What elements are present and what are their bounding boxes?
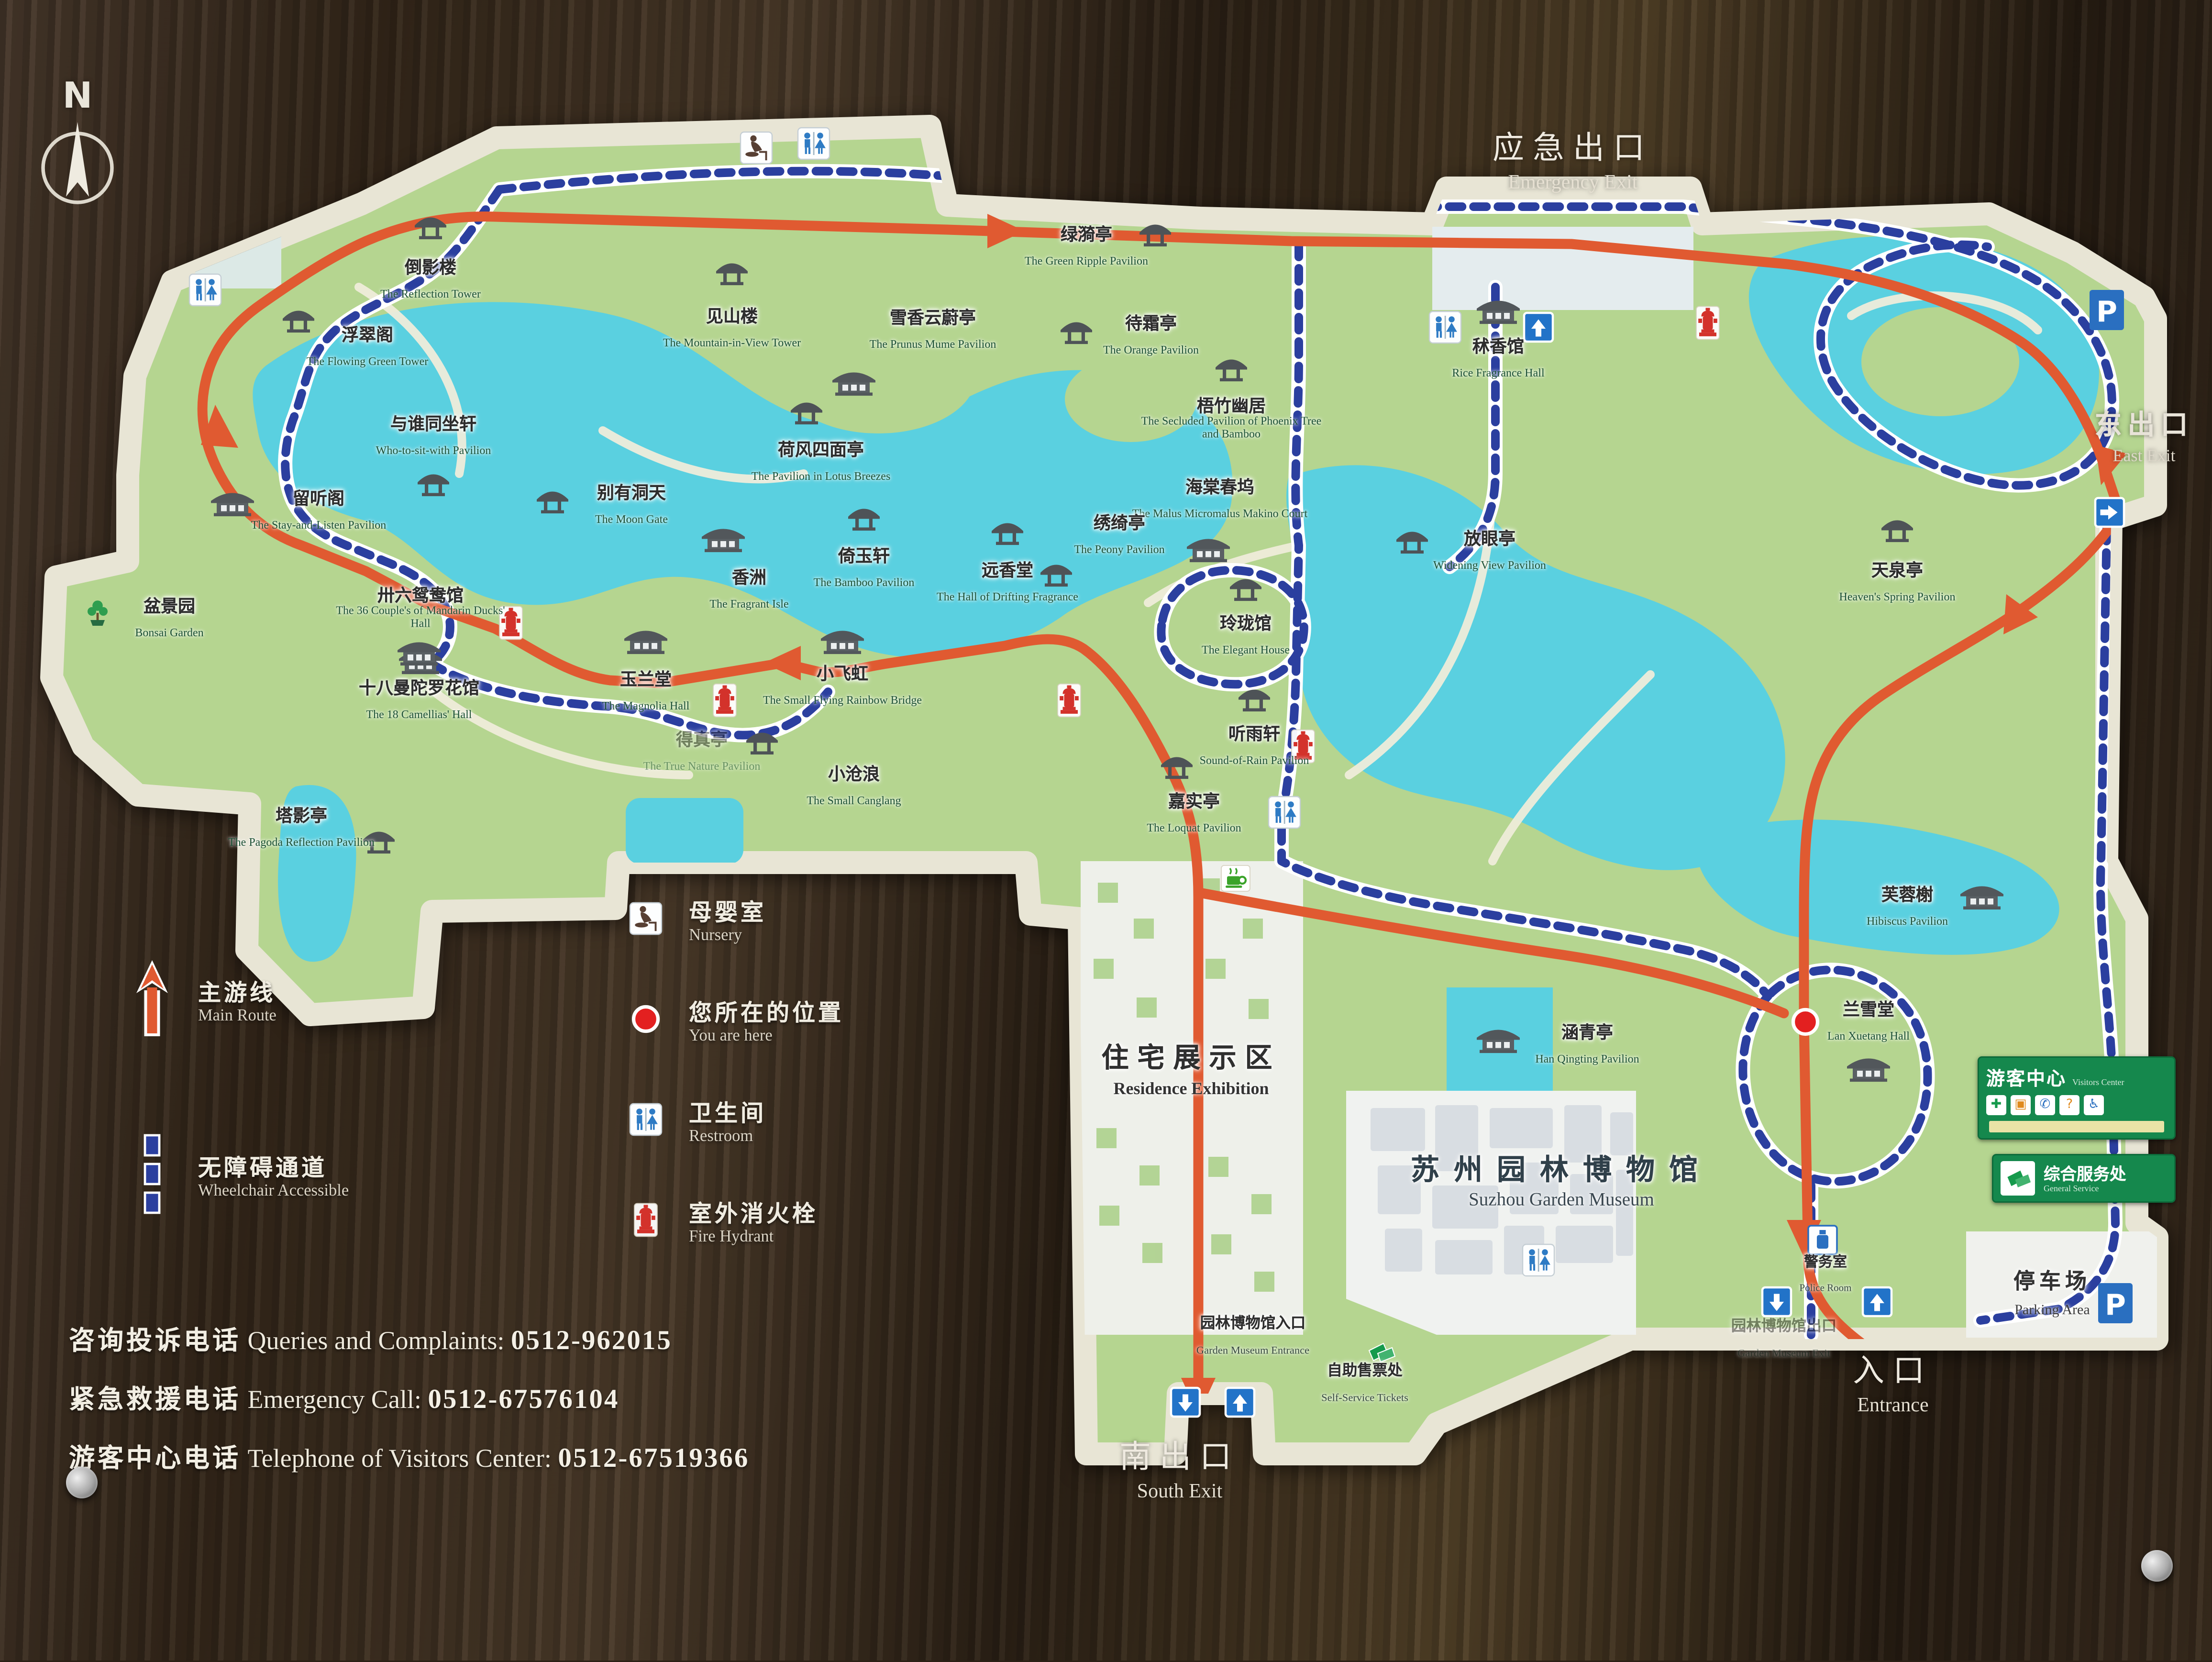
legend-label-cn: 主游线 bbox=[198, 973, 276, 1008]
map-label: 放眼亭Widening View Pavilion bbox=[1433, 530, 1546, 575]
label-en: The 18 Camellias' Hall bbox=[366, 710, 472, 723]
label-en: Residence Exhibition bbox=[1113, 1080, 1269, 1099]
legend-label-cn: 无障碍通道 bbox=[198, 1148, 349, 1183]
tickets-icon bbox=[1369, 1343, 1395, 1362]
legend-row: 卫生间Restroom bbox=[620, 1094, 766, 1145]
map-outline bbox=[52, 126, 2157, 1454]
map-label: 倒影楼The Reflection Tower bbox=[380, 259, 481, 304]
map-label: 卅六鸳鸯馆The 36 Couple's of Mandarin Ducks' … bbox=[329, 587, 512, 633]
label-cn: 嘉实亭 bbox=[1147, 793, 1241, 812]
pavilion-icon bbox=[537, 492, 568, 514]
contact-phone: 咨询投诉电话 Queries and Complaints: 0512-9620… bbox=[69, 1320, 749, 1358]
label-en: The Bamboo Pavilion bbox=[814, 578, 915, 591]
contact-text: 0512-67519366 bbox=[558, 1444, 749, 1474]
label-cn: 待霜亭 bbox=[1103, 315, 1199, 334]
visitors-center-label: 游客中心 bbox=[1986, 1064, 2067, 1091]
map-label: 芙蓉榭Hibiscus Pavilion bbox=[1867, 886, 1948, 931]
map-label: 留听阁The Stay-and-Listen Pavilion bbox=[251, 490, 387, 535]
label-en: The Secluded Pavilion of Phoenix Tree an… bbox=[1139, 417, 1323, 443]
label-en: The 36 Couple's of Mandarin Ducks' Hall bbox=[329, 606, 512, 632]
label-cn: 兰雪堂 bbox=[1827, 1001, 1910, 1020]
label-en: The Small Canglang bbox=[807, 796, 901, 809]
contact-text: Telephone of Visitors Center: bbox=[241, 1444, 558, 1473]
legend-label-cn: 您所在的位置 bbox=[689, 993, 844, 1028]
label-cn: 秫香馆 bbox=[1452, 338, 1544, 357]
label-cn: 香洲 bbox=[709, 569, 788, 588]
label-en: The Fragrant Isle bbox=[709, 599, 788, 612]
label-en: The Pagoda Reflection Pavilion bbox=[228, 838, 375, 851]
label-en: Rice Fragrance Hall bbox=[1452, 368, 1544, 381]
contact-phone: 紧急救援电话 Emergency Call: 0512-67576104 bbox=[69, 1379, 749, 1417]
map-label: 得真亭The True Nature Pavilion bbox=[643, 731, 761, 776]
pavilion-icon bbox=[1230, 579, 1261, 601]
general-service-sign: 综合服务处 General Service bbox=[1992, 1154, 2176, 1203]
exitdown-icon bbox=[1171, 1388, 1200, 1417]
label-cn: 涵青亭 bbox=[1535, 1024, 1639, 1043]
pavilion-icon bbox=[418, 475, 449, 497]
label-en: Entrance bbox=[1857, 1395, 1928, 1418]
hall-icon bbox=[821, 631, 864, 654]
pavilion-icon bbox=[1881, 521, 1913, 543]
label-cn: 放眼亭 bbox=[1433, 530, 1546, 549]
label-cn: 停车场 bbox=[2013, 1270, 2091, 1294]
legend-row: 您所在的位置You are here bbox=[620, 993, 844, 1045]
restroom-icon bbox=[1269, 797, 1300, 828]
gate-icon bbox=[2095, 498, 2124, 527]
label-cn: 塔影亭 bbox=[228, 807, 375, 826]
legend-label-en: Fire Hydrant bbox=[689, 1229, 818, 1246]
bonsai-icon bbox=[88, 600, 108, 626]
label-cn: 苏州园林博物馆 bbox=[1411, 1154, 1712, 1186]
label-en: The Pavilion in Lotus Breezes bbox=[752, 472, 891, 485]
residence-blocks bbox=[1094, 878, 1274, 1292]
service-mini-icon: ✆ bbox=[2035, 1095, 2055, 1115]
hydrant-icon bbox=[1696, 307, 1719, 340]
service-mini-icon: ▣ bbox=[2011, 1095, 2031, 1115]
exitdown-icon bbox=[1762, 1287, 1791, 1316]
map-label: 兰雪堂Lan Xuetang Hall bbox=[1827, 1001, 1910, 1046]
label-en: East Exit bbox=[2112, 447, 2175, 466]
map-label: 玉兰堂The Magnolia Hall bbox=[602, 671, 690, 716]
map-label: 涵青亭Han Qingting Pavilion bbox=[1535, 1024, 1639, 1069]
gate-icon bbox=[1524, 313, 1553, 342]
hydrant-icon bbox=[1058, 684, 1081, 717]
legend-label-en: You are here bbox=[689, 1028, 844, 1045]
map-label: 玲珑馆The Elegant House bbox=[1202, 615, 1290, 660]
general-service-icon bbox=[2001, 1161, 2035, 1196]
service-mini-icon: ? bbox=[2059, 1095, 2079, 1115]
label-cn: 荷风四面亭 bbox=[752, 441, 891, 460]
mount-screw bbox=[2141, 1550, 2173, 1582]
hall-icon bbox=[1187, 539, 1230, 563]
pavilion-icon bbox=[1139, 225, 1171, 247]
label-cn: 东出口 bbox=[2094, 411, 2193, 442]
label-cn: 卅六鸳鸯馆 bbox=[329, 587, 512, 606]
general-service-label-en: General Service bbox=[2044, 1186, 2126, 1194]
hydrant-icon bbox=[1292, 730, 1315, 763]
pavilion-icon bbox=[1040, 565, 1072, 587]
label-en: Garden Museum Entrance bbox=[1196, 1345, 1309, 1357]
label-cn: 园林博物馆入口 bbox=[1196, 1317, 1309, 1333]
map-label: 小飞虹The Small Flying Rainbow Bridge bbox=[763, 665, 922, 710]
map-label: 别有洞天The Moon Gate bbox=[595, 484, 668, 529]
contact-text: 0512-962015 bbox=[511, 1326, 672, 1356]
legend-label-en: Wheelchair Accessible bbox=[198, 1183, 349, 1200]
label-cn: 倒影楼 bbox=[380, 259, 481, 278]
map-label: 待霜亭The Orange Pavilion bbox=[1103, 315, 1199, 360]
compass: N bbox=[37, 75, 118, 214]
label-cn: 玲珑馆 bbox=[1202, 615, 1290, 634]
map-label: 警务室Police Room bbox=[1799, 1255, 1851, 1296]
contact-text: Emergency Call: bbox=[241, 1385, 428, 1414]
label-cn: 小飞虹 bbox=[763, 665, 922, 684]
main-route-arrows bbox=[201, 214, 2127, 1415]
label-cn: 玉兰堂 bbox=[602, 671, 690, 690]
youarehere-legend-icon bbox=[620, 993, 672, 1045]
pavilion-icon bbox=[363, 832, 395, 854]
main-route-legend-icon bbox=[123, 953, 181, 1045]
contact-text: 紧急救援电话 bbox=[69, 1385, 241, 1415]
hall-icon bbox=[1477, 301, 1520, 324]
label-cn: 园林博物馆出口 bbox=[1731, 1319, 1837, 1336]
map-label: 与谁同坐轩Who-to-sit-with Pavilion bbox=[376, 415, 491, 460]
map-label: 塔影亭The Pagoda Reflection Pavilion bbox=[228, 807, 375, 852]
pavilion-icon bbox=[1161, 757, 1193, 779]
label-cn: 倚玉轩 bbox=[814, 547, 915, 566]
map-label: 南出口South Exit bbox=[1119, 1441, 1240, 1504]
restroom-legend-icon bbox=[620, 1094, 672, 1145]
label-en: Parking Area bbox=[2014, 1302, 2090, 1319]
map-label: 雪香云蔚亭The Prunus Mume Pavilion bbox=[870, 309, 996, 354]
map-label: 听雨轩Sound-of-Rain Pavilion bbox=[1200, 725, 1309, 770]
legend-label-en: Nursery bbox=[689, 927, 766, 944]
label-en: The Green Ripple Pavilion bbox=[1025, 256, 1148, 269]
visitors-center-label-en: Visitors Center bbox=[2072, 1079, 2124, 1088]
pavilion-icon bbox=[791, 403, 822, 425]
map-label: 入口Entrance bbox=[1853, 1355, 1933, 1418]
restroom-icon bbox=[1523, 1244, 1554, 1276]
youarehere-icon bbox=[1793, 1010, 1818, 1034]
hall-icon bbox=[1960, 886, 2003, 910]
gate-icon bbox=[1863, 1287, 1891, 1316]
wheelchair-route-legend-icon bbox=[123, 1128, 181, 1220]
pavilion-icon bbox=[283, 311, 314, 333]
map-label: 远香堂The Hall of Drifting Fragrance bbox=[937, 562, 1078, 607]
label-en: The Orange Pavilion bbox=[1103, 345, 1199, 358]
label-en: The True Nature Pavilion bbox=[643, 762, 761, 775]
label-cn: 天泉亭 bbox=[1839, 562, 1956, 581]
legend-row: 母婴室Nursery bbox=[620, 893, 766, 944]
pavilion-icon bbox=[1061, 322, 1092, 344]
visitors-center-desk bbox=[1989, 1121, 2164, 1132]
pavilion-icon bbox=[992, 523, 1023, 545]
svg-text:P: P bbox=[2105, 1288, 2126, 1322]
label-en: The Malus Micromalus Makino Court bbox=[1132, 509, 1308, 522]
label-en: The Flowing Green Tower bbox=[307, 357, 428, 370]
label-en: The Prunus Mume Pavilion bbox=[870, 340, 996, 353]
label-en: Police Room bbox=[1799, 1284, 1851, 1295]
map-label: 盆景园Bonsai Garden bbox=[135, 598, 203, 643]
label-cn: 留听阁 bbox=[251, 490, 387, 509]
label-en: Widening View Pavilion bbox=[1433, 561, 1546, 574]
legend-label-en: Main Route bbox=[198, 1008, 276, 1025]
map-label: 绣绮亭The Peony Pavilion bbox=[1074, 514, 1164, 559]
label-cn: 梧竹幽居 bbox=[1139, 398, 1323, 417]
contact-text: 游客中心电话 bbox=[69, 1444, 241, 1474]
label-en: Who-to-sit-with Pavilion bbox=[376, 446, 491, 459]
label-en: Emergency Exit bbox=[1508, 172, 1638, 195]
service-mini-icon: ♿ bbox=[2084, 1095, 2104, 1115]
map-label: 自助售票处Self-Service Tickets bbox=[1321, 1364, 1408, 1407]
contact-text: 咨询投诉电话 bbox=[69, 1326, 241, 1356]
legend-row: 主游线Main Route bbox=[123, 953, 276, 1045]
nursery-legend-icon bbox=[620, 893, 672, 944]
label-en: The Mountain-in-View Tower bbox=[663, 338, 801, 351]
mount-screw bbox=[66, 1467, 98, 1498]
label-en: Bonsai Garden bbox=[135, 628, 203, 641]
wheelchair-route-line bbox=[285, 171, 2115, 1335]
map-board: PP N 咨询投诉电话 Queries and Complaints: 0512… bbox=[0, 0, 2212, 1661]
label-cn: 自助售票处 bbox=[1321, 1364, 1408, 1381]
label-cn: 芙蓉榭 bbox=[1867, 886, 1948, 905]
map-label: 倚玉轩The Bamboo Pavilion bbox=[814, 547, 915, 592]
label-en: The Hall of Drifting Fragrance bbox=[937, 592, 1078, 605]
label-cn: 绣绮亭 bbox=[1074, 514, 1164, 533]
label-cn: 别有洞天 bbox=[595, 484, 668, 503]
parking-icon: P bbox=[2090, 290, 2124, 330]
compass-n-label: N bbox=[63, 75, 93, 116]
gate-icon bbox=[1226, 1388, 1254, 1417]
pavilion-icon bbox=[848, 509, 880, 531]
label-en: Sound-of-Rain Pavilion bbox=[1200, 756, 1309, 769]
label-cn: 得真亭 bbox=[643, 731, 761, 750]
label-en: The Small Flying Rainbow Bridge bbox=[763, 696, 922, 709]
map-label: 浮翠阁The Flowing Green Tower bbox=[307, 326, 428, 371]
contact-text: Queries and Complaints: bbox=[241, 1326, 511, 1355]
label-cn: 应急出口 bbox=[1493, 133, 1653, 168]
legend-label-cn: 卫生间 bbox=[689, 1094, 766, 1128]
pavilion-icon bbox=[1216, 360, 1247, 382]
map-label: 香洲The Fragrant Isle bbox=[709, 569, 788, 614]
legend-label-en: Restroom bbox=[689, 1128, 766, 1145]
map-label: 绿漪亭The Green Ripple Pavilion bbox=[1025, 226, 1148, 271]
label-en: Self-Service Tickets bbox=[1321, 1392, 1408, 1404]
legend-label-cn: 母婴室 bbox=[689, 893, 766, 927]
pavilion-icon bbox=[716, 264, 748, 286]
label-cn: 十八曼陀罗花馆 bbox=[359, 679, 479, 698]
map-label: 嘉实亭The Loquat Pavilion bbox=[1147, 793, 1241, 838]
label-cn: 小沧浪 bbox=[807, 765, 901, 785]
hall-icon bbox=[398, 643, 441, 666]
contact-phone-list: 咨询投诉电话 Queries and Complaints: 0512-9620… bbox=[69, 1320, 749, 1475]
label-en: The Elegant House bbox=[1202, 645, 1290, 658]
compass-needle-icon bbox=[37, 116, 118, 208]
contact-text: 0512-67576104 bbox=[428, 1385, 619, 1415]
pavilion-icon bbox=[1396, 532, 1428, 554]
service-mini-icon: ✚ bbox=[1986, 1095, 2006, 1115]
hall-icon bbox=[211, 493, 254, 517]
label-en: Hibiscus Pavilion bbox=[1867, 917, 1948, 930]
restroom-icon bbox=[189, 274, 221, 306]
pavilion-icon bbox=[746, 733, 778, 755]
label-en: Suzhou Garden Museum bbox=[1469, 1190, 1654, 1211]
label-cn: 南出口 bbox=[1119, 1441, 1240, 1477]
map-label: 小沧浪The Small Canglang bbox=[807, 765, 901, 810]
label-en: The Moon Gate bbox=[595, 515, 668, 528]
hydrant-icon bbox=[499, 607, 522, 640]
label-cn: 雪香云蔚亭 bbox=[870, 309, 996, 328]
pavilion-icon bbox=[415, 218, 446, 240]
map-label: 见山楼The Mountain-in-View Tower bbox=[663, 308, 801, 353]
label-en: South Exit bbox=[1137, 1481, 1223, 1504]
main-route-line bbox=[202, 217, 2120, 1438]
map-label: 园林博物馆入口Garden Museum Entrance bbox=[1196, 1317, 1309, 1359]
legend-row: 室外消火栓Fire Hydrant bbox=[620, 1194, 818, 1246]
label-cn: 海棠春坞 bbox=[1132, 478, 1308, 498]
hall-icon bbox=[624, 631, 667, 654]
map-label: 苏州园林博物馆Suzhou Garden Museum bbox=[1411, 1154, 1712, 1212]
hall-icon bbox=[832, 373, 875, 396]
visitors-center-service-icons: ✚▣✆?♿ bbox=[1986, 1095, 2167, 1115]
hydrant-legend-icon bbox=[620, 1194, 672, 1246]
label-en: Lan Xuetang Hall bbox=[1827, 1031, 1910, 1044]
label-cn: 警务室 bbox=[1799, 1255, 1851, 1271]
map-label: 天泉亭Heaven's Spring Pavilion bbox=[1839, 562, 1956, 607]
restroom-icon bbox=[1429, 311, 1461, 343]
map-label: 海棠春坞The Malus Micromalus Makino Court bbox=[1132, 478, 1308, 523]
label-cn: 见山楼 bbox=[663, 308, 801, 327]
hall-icon bbox=[702, 529, 745, 553]
hydrant-icon bbox=[713, 684, 736, 717]
label-cn: 浮翠阁 bbox=[307, 326, 428, 345]
label-en: The Reflection Tower bbox=[380, 289, 481, 302]
map-label: 东出口East Exit bbox=[2094, 411, 2193, 467]
map-label: 应急出口Emergency Exit bbox=[1493, 133, 1653, 195]
hall-icon bbox=[1847, 1059, 1890, 1082]
nursery-icon bbox=[741, 132, 772, 164]
label-en: The Magnolia Hall bbox=[602, 701, 690, 714]
label-cn: 与谁同坐轩 bbox=[376, 415, 491, 434]
label-en: The Peony Pavilion bbox=[1074, 545, 1164, 558]
label-cn: 远香堂 bbox=[937, 562, 1078, 581]
map-label: 秫香馆Rice Fragrance Hall bbox=[1452, 338, 1544, 383]
label-en: Heaven's Spring Pavilion bbox=[1839, 592, 1956, 605]
map-label: 住宅展示区Residence Exhibition bbox=[1101, 1044, 1281, 1100]
contact-phone: 游客中心电话 Telephone of Visitors Center: 051… bbox=[69, 1438, 749, 1475]
label-cn: 住宅展示区 bbox=[1101, 1044, 1281, 1075]
visitors-center-sign: 游客中心 Visitors Center ✚▣✆?♿ bbox=[1978, 1056, 2176, 1140]
general-service-label: 综合服务处 bbox=[2044, 1163, 2126, 1186]
label-en: The Stay-and-Listen Pavilion bbox=[251, 521, 387, 533]
lake-water bbox=[253, 236, 2099, 1091]
museum-buildings bbox=[1371, 1105, 1633, 1274]
label-en: Han Qingting Pavilion bbox=[1535, 1054, 1639, 1067]
pavilion-icon bbox=[1239, 690, 1270, 712]
map-label: 十八曼陀罗花馆The 18 Camellias' Hall bbox=[359, 679, 479, 724]
label-cn: 听雨轩 bbox=[1200, 725, 1309, 744]
map-label: 停车场Parking Area bbox=[2013, 1270, 2091, 1319]
label-cn: 绿漪亭 bbox=[1025, 226, 1148, 245]
parking-icon: P bbox=[2098, 1283, 2133, 1323]
label-cn: 入口 bbox=[1853, 1355, 1933, 1391]
label-en: Garden Museum Exit bbox=[1737, 1348, 1830, 1360]
map-label: 园林博物馆出口Garden Museum Exit bbox=[1731, 1319, 1837, 1362]
svg-text:P: P bbox=[2096, 295, 2117, 329]
legend-label-cn: 室外消火栓 bbox=[689, 1194, 818, 1229]
label-en: The Loquat Pavilion bbox=[1147, 823, 1241, 836]
teacup-icon bbox=[1221, 865, 1250, 891]
label-cn: 盆景园 bbox=[135, 598, 203, 617]
restroom-icon bbox=[798, 128, 829, 159]
map-label: 梧竹幽居The Secluded Pavilion of Phoenix Tre… bbox=[1139, 398, 1323, 444]
map-label: 荷风四面亭The Pavilion in Lotus Breezes bbox=[752, 441, 891, 486]
hall-icon bbox=[399, 651, 442, 675]
hall-icon bbox=[1477, 1030, 1520, 1053]
legend-row: 无障碍通道Wheelchair Accessible bbox=[123, 1128, 349, 1220]
police-icon bbox=[1808, 1226, 1837, 1254]
